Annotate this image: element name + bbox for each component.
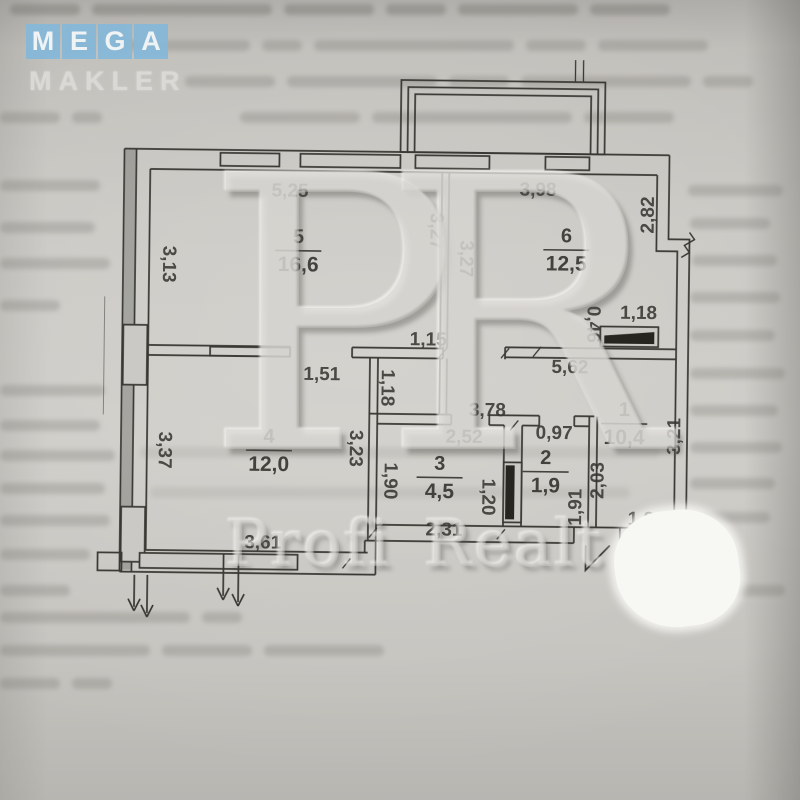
dimension-label: 3,21 — [664, 417, 685, 455]
room-area: 16,6 — [278, 253, 319, 276]
room-fraction-line — [246, 450, 292, 451]
dimension-label: 1,51 — [303, 364, 341, 385]
dimension-label: 5,62 — [551, 357, 588, 378]
window — [220, 153, 279, 167]
dimension-label: 3,98 — [519, 179, 556, 200]
dimension-label: 5,25 — [271, 180, 309, 201]
logo-tile: G — [98, 24, 132, 59]
dimension-label: 3,23 — [345, 430, 366, 467]
logo-tile: M — [26, 24, 60, 59]
room-fraction-line — [601, 423, 647, 424]
room-fraction-line — [275, 250, 321, 251]
window-sill — [97, 552, 121, 570]
dimension-label: 3,13 — [158, 246, 179, 283]
dimension-label: 3,37 — [154, 432, 175, 469]
room-fraction-line — [543, 250, 589, 251]
wall-niche — [210, 347, 290, 357]
dimension-label: 2,52 — [445, 427, 482, 448]
plan-walls — [97, 54, 704, 623]
dimension-label: 1,18 — [620, 303, 657, 324]
room-number: 2 — [540, 447, 551, 469]
room-number: 4 — [263, 426, 275, 448]
room-fraction-line — [417, 477, 463, 478]
dimension-label: 3,78 — [469, 400, 506, 421]
entrance-door-swing — [585, 545, 609, 570]
window — [123, 325, 148, 385]
scanned-floor-plan-page: 5,253,982,823,133,273,271,155,620,461,18… — [0, 0, 800, 800]
room-area: 10,4 — [603, 426, 644, 450]
dimension-label: 3,27 — [455, 240, 476, 277]
dimension-label: 2,82 — [638, 196, 659, 233]
logo-subtitle: MAKLER — [29, 66, 187, 97]
mega-makler-logo: MEGA MAKLER — [26, 24, 187, 97]
room-number: 1 — [619, 399, 630, 421]
dimension-label: 3,27 — [425, 213, 446, 250]
logo-tile: E — [62, 24, 96, 59]
dimension-label: 2,03 — [587, 462, 608, 499]
room-area: 4,5 — [425, 480, 455, 503]
wall-break-symbol — [681, 232, 694, 257]
dimension-label: 1,20 — [477, 478, 498, 515]
room-number: 3 — [434, 453, 445, 475]
dimension-label: 0,46 — [582, 306, 603, 343]
logo-tiles: MEGA — [26, 24, 187, 59]
dimension-label: 1,15 — [410, 329, 448, 350]
dimension-labels: 5,253,982,823,133,273,271,155,620,461,18… — [153, 175, 689, 558]
dimension-label: 1,18 — [376, 369, 397, 406]
dimension-label: 1,91 — [565, 488, 586, 526]
window — [415, 155, 489, 169]
dimension-label: 3,61 — [244, 532, 282, 553]
dimension-label: 1,90 — [379, 462, 400, 499]
room-fraction-line — [523, 472, 569, 473]
window — [300, 154, 400, 168]
room-area: 1,9 — [531, 474, 560, 497]
balcony-outline — [401, 80, 606, 154]
room-number: 6 — [561, 225, 572, 247]
dimension-label: 0,97 — [535, 423, 572, 444]
window — [545, 157, 589, 171]
room-area: 12,5 — [546, 252, 587, 276]
room-area: 12,0 — [248, 453, 289, 476]
window — [139, 553, 297, 570]
floor-plan-svg: 5,253,982,823,133,273,271,155,620,461,18… — [0, 0, 800, 800]
logo-tile: A — [134, 24, 168, 59]
room-number: 5 — [293, 226, 304, 248]
dimension-label: 2,31 — [425, 519, 463, 540]
